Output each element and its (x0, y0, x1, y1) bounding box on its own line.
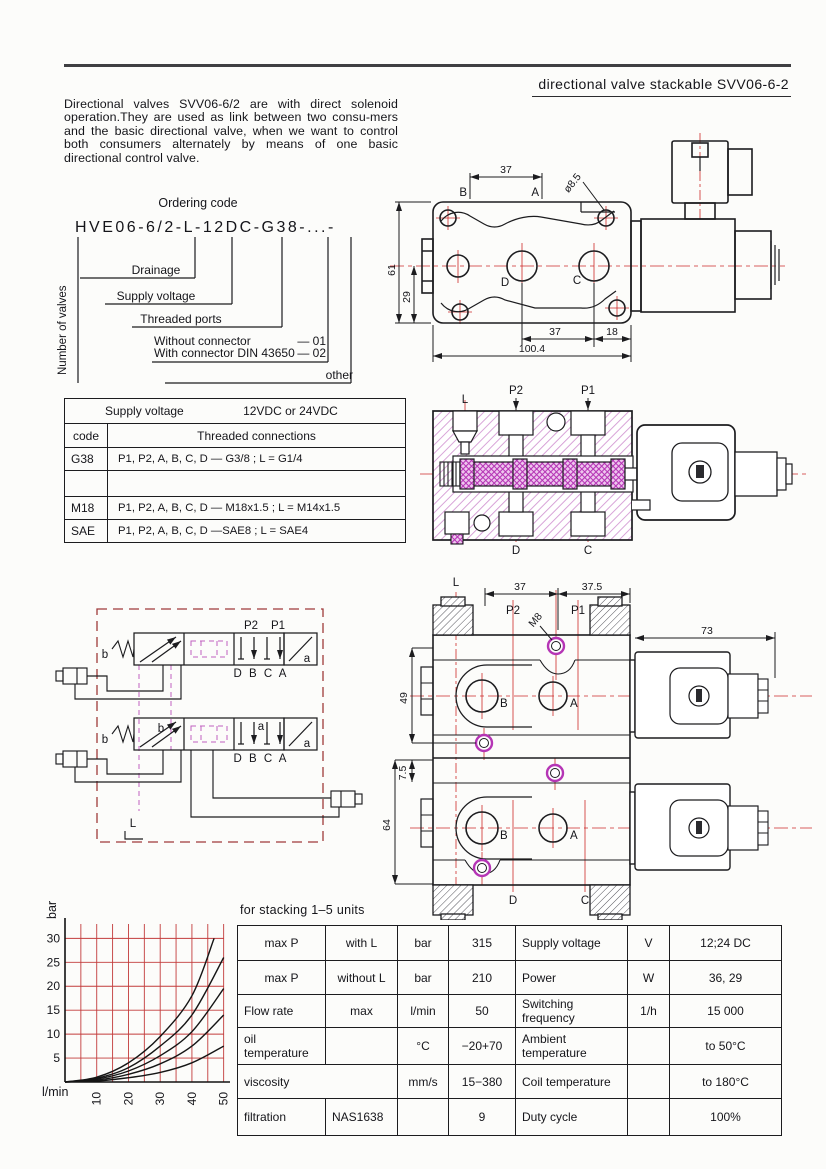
x-tick-label: 20 (121, 1092, 135, 1106)
spec-cell: 15−380 (449, 1065, 516, 1099)
stack-body (421, 597, 768, 920)
drawing-labels: 37 ø8.5 61 29 37 18 100.4 B A D C (386, 164, 618, 355)
spec-table-caption: for stacking 1–5 units (240, 903, 365, 917)
dim-37-top: 37 (500, 164, 512, 176)
dim-61: 61 (386, 264, 398, 276)
port-label-P2: P2 (506, 605, 520, 617)
spec-cell: max P (238, 961, 326, 995)
spool (460, 459, 625, 489)
y-tick-label: 25 (47, 955, 61, 969)
spec-cell: oil temperature (238, 1028, 326, 1065)
port-arrows (516, 398, 588, 410)
spec-cell: Ambient temperature (516, 1028, 628, 1065)
spec-cell: 36, 29 (670, 961, 782, 995)
drainage-label: Drainage (132, 263, 181, 277)
table-row: filtration NAS1638 9 Duty cycle 100% (238, 1099, 782, 1136)
table-row: Flow rate max l/min 50 Switching frequen… (238, 995, 782, 1028)
centerlines (410, 590, 812, 905)
spec-cell: max P (238, 926, 326, 961)
dim-18: 18 (606, 326, 618, 338)
y-tick-label: 10 (47, 1027, 61, 1041)
spec-cell: to 50°C (670, 1028, 782, 1065)
threaded-ports-label: Threaded ports (140, 312, 221, 326)
table-row: max P without L bar 210 Power W 36, 29 (238, 961, 782, 995)
spec-cell: 15 000 (670, 995, 782, 1028)
table-row: M18 P1, P2, A, B, C, D — M18x1.5 ; L = M… (65, 497, 406, 520)
spec-cell: V (628, 926, 670, 961)
spec-cell (628, 1028, 670, 1065)
port-label-L: L (462, 394, 469, 406)
spec-cell: Supply voltage (516, 926, 628, 961)
spec-cell: Coil temperature (516, 1065, 628, 1099)
x-tick-label: 10 (90, 1092, 104, 1106)
port-label-P1: P1 (581, 385, 595, 397)
port-label-D: D (501, 277, 509, 289)
connections-cell (108, 471, 406, 497)
spec-cell: bar (398, 926, 449, 961)
number-of-valves-label: Number of valves (57, 285, 69, 375)
port-label-B1: B (500, 698, 508, 710)
spec-cell: NAS1638 (326, 1099, 398, 1136)
spec-cell: 210 (449, 961, 516, 995)
dim-49: 49 (398, 692, 410, 704)
spec-cell: °C (398, 1028, 449, 1065)
label-a2: a (304, 738, 311, 750)
solenoid-2 (630, 784, 768, 870)
spec-cell: Duty cycle (516, 1099, 628, 1136)
spec-cell: max (326, 995, 398, 1028)
ordering-code-diagram: Ordering code HVE06-6/2-L-12DC-G38-...- … (50, 193, 390, 393)
label-a-inner: a (258, 721, 265, 733)
y-tick-label: 5 (53, 1051, 60, 1065)
spec-cell: bar (398, 961, 449, 995)
table-row: oil temperature °C −20+70 Ambient temper… (238, 1028, 782, 1065)
spec-cell: −20+70 (449, 1028, 516, 1065)
datasheet-page: directional valve stackable SVV06-6-2 Di… (0, 0, 826, 1169)
ordering-code-string: HVE06-6/2-L-12DC-G38-...- (75, 219, 336, 236)
ports-bottom: D B C A (234, 753, 289, 765)
code-cell: M18 (65, 497, 108, 520)
x-tick-label: 30 (153, 1092, 167, 1106)
connections-cell: P1, P2, A, B, C, D —SAE8 ; L = SAE4 (108, 520, 406, 543)
dim-37-bottom: 37 (549, 326, 561, 338)
schematic-wiring (56, 665, 362, 839)
with-connector-label: With connector DIN 43650 (154, 346, 295, 360)
spec-cell (628, 1065, 670, 1099)
valve-body (422, 141, 779, 323)
table-row: Supply voltage 12VDC or 24VDC (65, 399, 406, 424)
spec-cell: l/min (398, 995, 449, 1028)
spec-cell: 100% (670, 1099, 782, 1136)
spec-cell: 50 (449, 995, 516, 1028)
connections-cell: P1, P2, A, B, C, D — M18x1.5 ; L = M14x1… (108, 497, 406, 520)
table-row (65, 471, 406, 497)
port-label-A2: A (570, 830, 578, 842)
port-label-A: A (531, 187, 539, 199)
dim-37: 37 (514, 581, 526, 593)
valve-section-body (433, 411, 792, 544)
label-P1: P1 (271, 620, 285, 632)
y-axis-label: bar (45, 901, 59, 919)
label-P2: P2 (244, 620, 258, 632)
port-label-C: C (581, 895, 589, 907)
label-a1: a (304, 653, 311, 665)
stacked-assembly-drawing: 37 37.5 73 49 7.5 64 M8 L P2 P1 B A B A … (380, 570, 820, 920)
dim-64: 64 (381, 819, 393, 831)
connections-cell: P1, P2, A, B, C, D — G3/8 ; L = G1/4 (108, 448, 406, 471)
cross-section-drawing: L P2 P1 D C (415, 370, 815, 570)
dim-73: 73 (701, 625, 713, 637)
label-b-inner: b (158, 723, 164, 735)
y-tick-label: 20 (47, 979, 61, 993)
page-title: directional valve stackable SVV06-6-2 (420, 76, 791, 92)
table-row: SAE P1, P2, A, B, C, D —SAE8 ; L = SAE4 (65, 520, 406, 543)
spec-cell (326, 1028, 398, 1065)
spec-cell: 9 (449, 1099, 516, 1136)
spec-cell: Switching frequency (516, 995, 628, 1028)
with-connector-code: — 02 (297, 346, 326, 360)
port-label-D: D (509, 895, 517, 907)
label-b1: b (102, 649, 108, 661)
x-tick-label: 40 (185, 1092, 199, 1106)
port-label-B: B (459, 187, 467, 199)
ordering-heading: Ordering code (158, 196, 237, 210)
dim-7-5: 7.5 (397, 766, 409, 781)
supply-voltage-label: Supply voltage (71, 404, 184, 418)
table-row: viscosity mm/s 15−380 Coil temperature t… (238, 1065, 782, 1099)
dim-100-4: 100.4 (519, 343, 545, 355)
spec-cell: 1/h (628, 995, 670, 1028)
port-label-L: L (453, 577, 460, 589)
port-label-B2: B (500, 830, 508, 842)
centerlines (390, 133, 785, 347)
supply-voltage-label: Supply voltage (117, 289, 196, 303)
label-M8: M8 (526, 611, 545, 630)
x-axis-label: l/min (42, 1085, 68, 1099)
spec-cell (398, 1099, 449, 1136)
port-label-C: C (573, 275, 581, 287)
top-view-drawing: 37 ø8.5 61 29 37 18 100.4 B A D C (385, 125, 815, 370)
port-label-C: C (584, 545, 592, 557)
spec-cell: 12;24 DC (670, 926, 782, 961)
dim-37-5: 37.5 (582, 581, 603, 593)
code-cell: SAE (65, 520, 108, 543)
other-label: other (326, 368, 353, 382)
x-tick-label: 50 (217, 1092, 231, 1106)
supply-voltage-row: Supply voltage 12VDC or 24VDC (65, 399, 406, 424)
port-label-P1: P1 (571, 605, 585, 617)
spec-cell (628, 1099, 670, 1136)
y-tick-label: 15 (47, 1003, 61, 1017)
spec-cell: to 180°C (670, 1065, 782, 1099)
spec-cell: without L (326, 961, 398, 995)
ordering-leader-lines (78, 237, 351, 383)
code-cell (65, 471, 108, 497)
pressure-flow-chart: 510152025301020304050barl/min (40, 893, 240, 1133)
port-label-D: D (512, 545, 520, 557)
hydraulic-schematic: P2 P1 D B C A D B C A b a b a b a L (55, 595, 395, 865)
label-b2: b (102, 734, 108, 746)
supply-voltage-value: 12VDC or 24VDC (187, 404, 338, 418)
spec-cell: mm/s (398, 1065, 449, 1099)
y-tick-label: 30 (47, 931, 61, 945)
solenoid-1 (630, 652, 768, 738)
spec-cell: Power (516, 961, 628, 995)
spec-cell: W (628, 961, 670, 995)
pilot-lines (139, 641, 227, 811)
spec-cell: filtration (238, 1099, 326, 1136)
ports-top: D B C A (234, 668, 289, 680)
description-paragraph: Directional valves SVV06-6/2 are with di… (64, 98, 398, 165)
dim-dia-8-5: ø8.5 (561, 171, 583, 195)
spec-cell: 315 (449, 926, 516, 961)
page-title-text: directional valve stackable SVV06-6-2 (532, 76, 791, 97)
solenoid (637, 425, 792, 520)
m8-holes (474, 638, 564, 876)
spec-table: max P with L bar 315 Supply voltage V 12… (237, 925, 782, 1136)
table-row: max P with L bar 315 Supply voltage V 12… (238, 926, 782, 961)
dim-29: 29 (401, 291, 413, 303)
table-row: code Threaded connections (65, 424, 406, 448)
spec-cell: Flow rate (238, 995, 326, 1028)
top-rule (64, 64, 791, 67)
code-header: code (65, 424, 108, 448)
table-row: G38 P1, P2, A, B, C, D — G3/8 ; L = G1/4 (65, 448, 406, 471)
label-L: L (130, 818, 137, 830)
connections-header: Threaded connections (108, 424, 406, 448)
voltage-table: Supply voltage 12VDC or 24VDC code Threa… (64, 398, 406, 543)
code-cell: G38 (65, 448, 108, 471)
spec-cell: with L (326, 926, 398, 961)
port-label-P2: P2 (509, 385, 523, 397)
spec-cell: viscosity (238, 1065, 398, 1099)
port-label-A1: A (570, 698, 578, 710)
